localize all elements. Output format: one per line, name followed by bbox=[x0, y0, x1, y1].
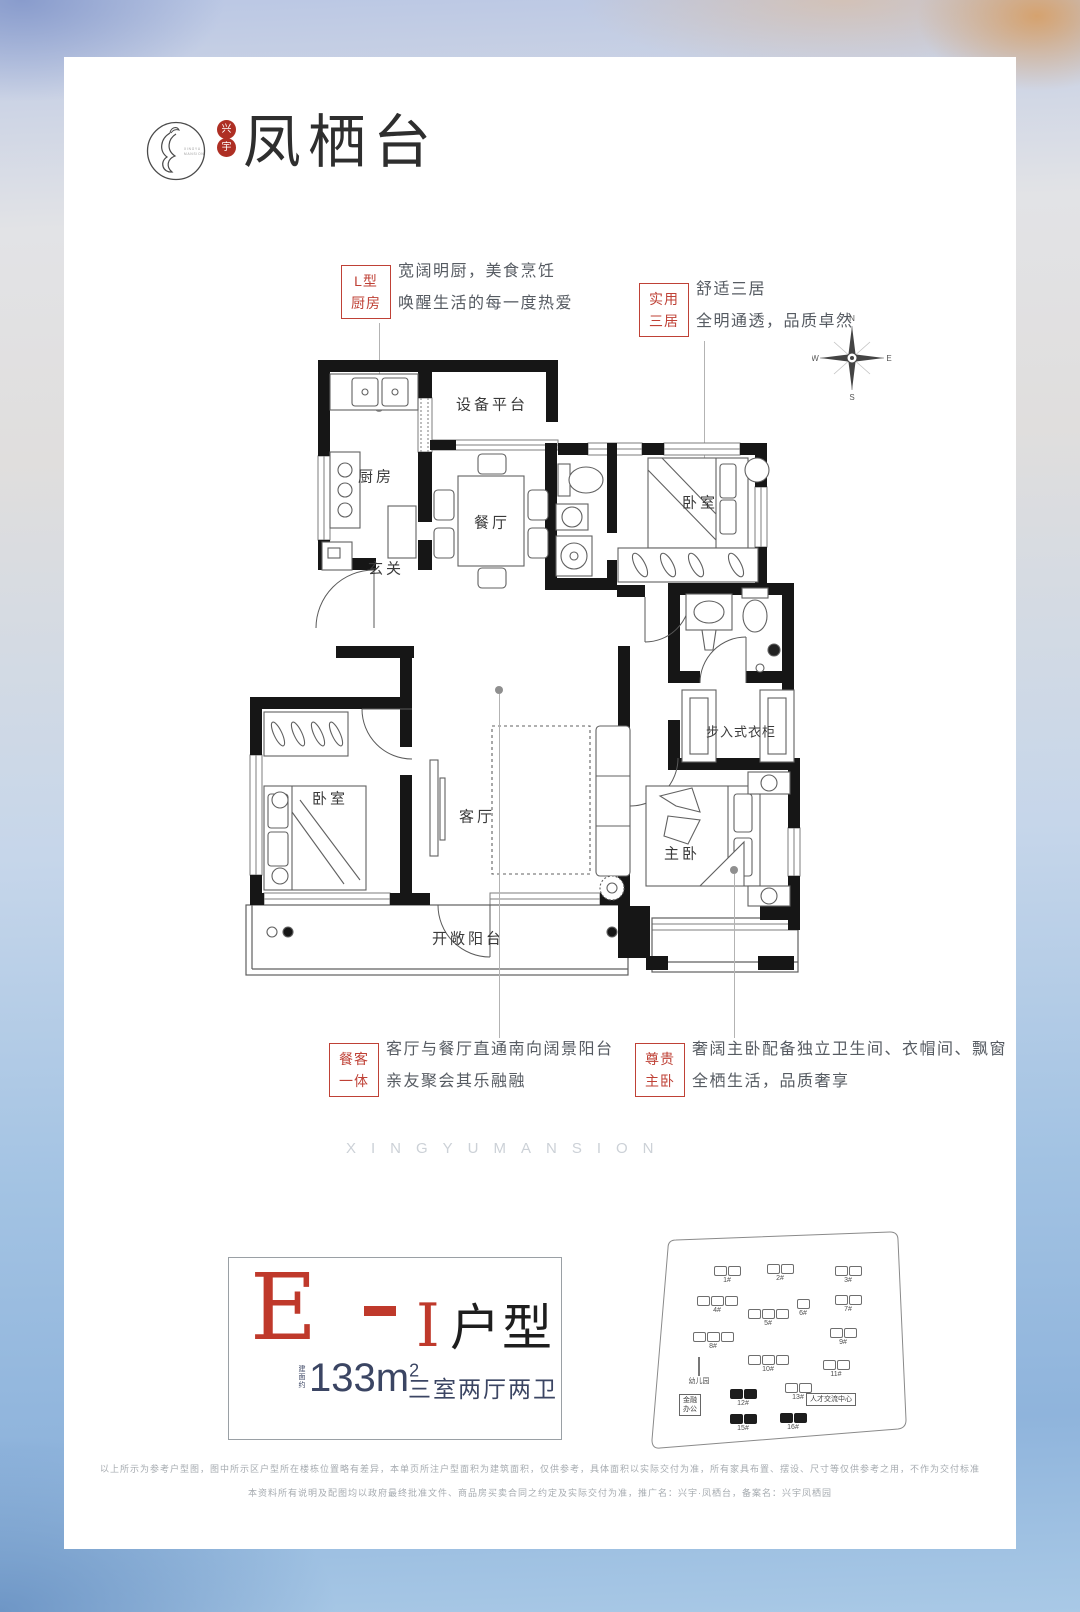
site-plan-outline bbox=[0, 0, 1080, 1612]
site-building: 2# bbox=[758, 1264, 802, 1283]
site-building: 7# bbox=[826, 1295, 870, 1314]
site-building-highlighted: 15# bbox=[721, 1414, 765, 1433]
site-building: 9# bbox=[821, 1328, 865, 1347]
site-kindergarten: 幼儿园 bbox=[677, 1358, 721, 1386]
site-finance-office: 金融 办公 bbox=[679, 1394, 701, 1416]
site-building: 3# bbox=[826, 1266, 870, 1285]
site-building: 6# bbox=[781, 1299, 825, 1318]
site-building: 1# bbox=[705, 1266, 749, 1285]
site-building-highlighted: 12# bbox=[721, 1389, 765, 1408]
site-building: 8# bbox=[691, 1332, 735, 1351]
disclaimer-line2: 本资料所有说明及配图均以政府最终批准文件、商品房买卖合同之约定及实际交付为准，推… bbox=[64, 1486, 1016, 1499]
poster-page: { "brand": { "name": "凤栖台", "seal_top": … bbox=[0, 0, 1080, 1612]
disclaimer-line1: 以上所示为参考户型图，图中所示区户型所在楼栋位置略有差异，本单页所注户型面积为建… bbox=[64, 1462, 1016, 1475]
site-building: 10# bbox=[746, 1355, 790, 1374]
site-building: 4# bbox=[695, 1296, 739, 1315]
site-talent-center: 人才交流中心 bbox=[806, 1393, 856, 1406]
site-building: 11# bbox=[814, 1360, 858, 1379]
site-building-highlighted: 16# bbox=[771, 1413, 815, 1432]
